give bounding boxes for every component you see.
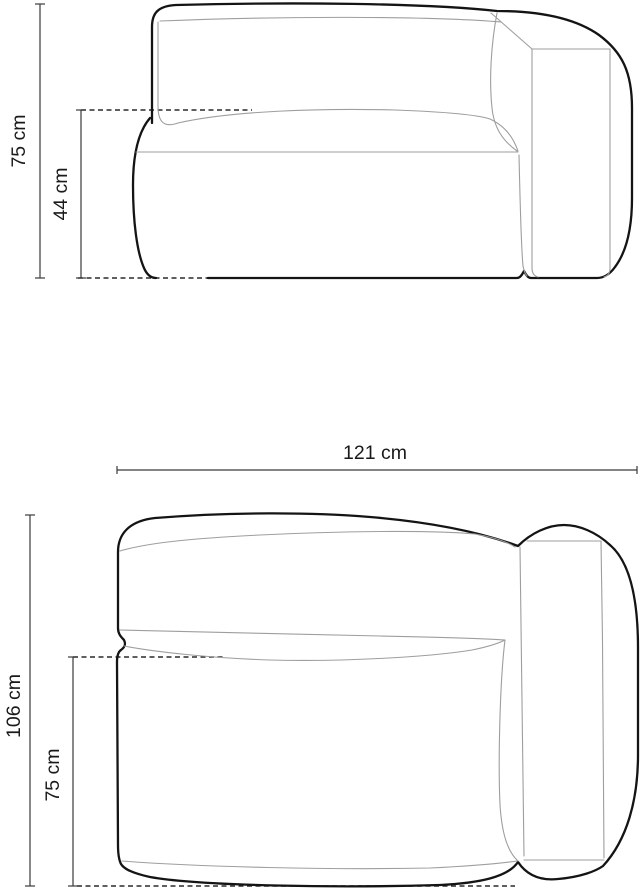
plan-cushion-back-seam	[120, 630, 505, 640]
side-armrest-back-seam	[491, 13, 517, 151]
side-armrest-panel-left-seam	[532, 49, 538, 277]
plan-seat-bottom-seam	[122, 861, 517, 869]
side-seatback-seam	[178, 109, 518, 151]
plan-backrest-seam	[120, 531, 515, 551]
plan-seat-depth-dimension: 75 cm	[42, 657, 78, 886]
sofa-dimension-drawing: 75 cm 44 cm	[0, 0, 641, 892]
side-sofa-outline	[152, 3, 632, 278]
side-seat-height-label: 44 cm	[50, 167, 72, 220]
plan-overall-width-label: 121 cm	[343, 442, 407, 464]
side-overall-height-label: 75 cm	[8, 114, 30, 167]
plan-cushion-right-seam	[499, 640, 518, 861]
plan-armrest-panel-right-seam	[601, 541, 604, 858]
plan-overall-depth-label: 106 cm	[3, 674, 25, 738]
plan-module-gap-seam	[520, 547, 524, 856]
plan-overall-width-dimension: 121 cm	[117, 442, 637, 474]
side-view: 75 cm 44 cm	[8, 3, 632, 278]
side-seat-front-outline	[133, 118, 156, 278]
side-armrest-panel-right-seam	[604, 49, 610, 277]
side-backrest-top-seam	[160, 17, 501, 22]
plan-sofa-outline	[117, 513, 638, 886]
plan-view: 121 cm 106 cm 75 cm	[3, 442, 638, 886]
plan-cushion-front-seam	[124, 640, 505, 660]
side-overall-height-dimension: 75 cm	[8, 4, 45, 278]
side-seat-height-dimension: 44 cm	[50, 110, 86, 278]
side-armrest-panel-diagonal-seam	[491, 13, 532, 49]
plan-overall-depth-dimension: 106 cm	[3, 515, 35, 886]
dimension-diagram: 75 cm 44 cm	[0, 0, 641, 892]
side-seat-right-seam	[519, 155, 527, 276]
plan-seat-depth-label: 75 cm	[42, 748, 64, 801]
